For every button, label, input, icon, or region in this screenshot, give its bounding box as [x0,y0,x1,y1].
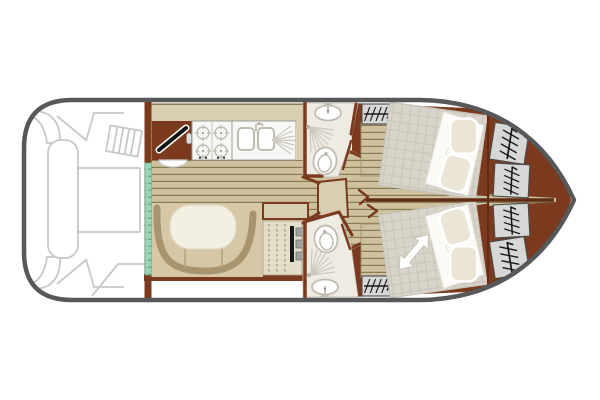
faucet-dot [258,122,260,124]
bulkhead [145,102,152,298]
dinette [151,203,263,277]
sideboard-rail [290,226,294,262]
cabin-bottom [361,201,487,298]
deck-steps [106,125,142,156]
pillow [450,246,477,281]
hanging-locker [493,163,530,198]
deck-table [78,168,140,232]
sink-basin-icon [238,128,254,150]
galley [151,105,305,167]
corridor-cabinet [318,179,348,217]
sideboard-knobs [296,228,303,260]
bed-bottom [379,201,488,298]
bed-top [379,102,488,199]
hanging-locker [489,122,529,164]
hanging-locker [489,237,529,279]
throttle-lever-icon [187,133,192,144]
cabin-top [361,102,487,199]
boat-floor-plan [0,0,600,400]
hanging-locker [493,203,530,238]
sideboard-shelf [263,203,308,219]
sideboard [263,203,308,275]
pillow [450,119,477,154]
boat-floor-plan-svg [0,0,600,400]
galley-backsplash [151,105,305,122]
deck-bench [48,140,78,258]
sink-unit [232,121,305,160]
interior [144,102,571,298]
dinette-table [170,205,236,249]
sliding-door [145,163,152,275]
sink-basin-icon [258,128,274,150]
stove [192,121,232,160]
